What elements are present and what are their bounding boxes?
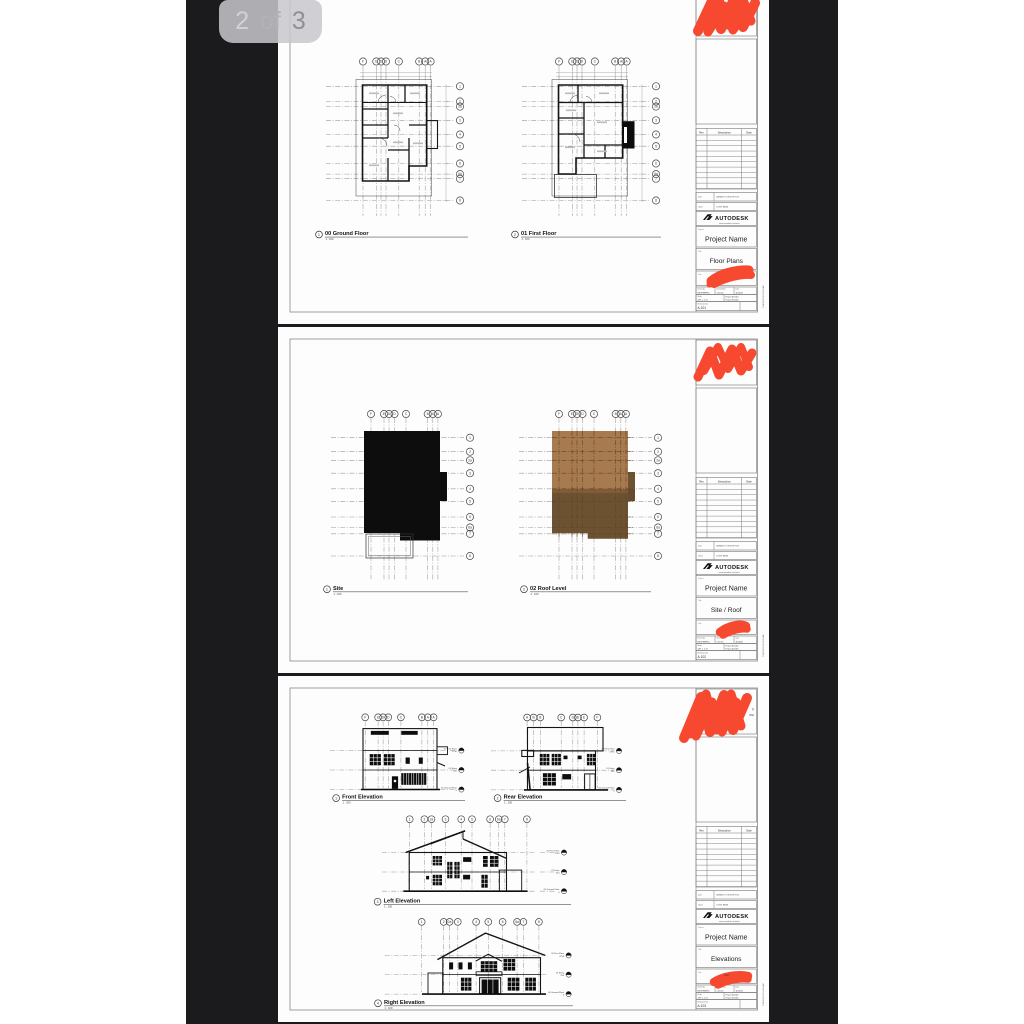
svg-text:3: 3 xyxy=(657,471,659,475)
svg-text:2750: 2750 xyxy=(559,956,565,958)
svg-text:1 : 100: 1 : 100 xyxy=(531,592,539,596)
svg-text:Client: Client xyxy=(698,205,703,208)
svg-text:Date: Date xyxy=(698,545,702,548)
svg-text:2a: 2a xyxy=(448,920,452,924)
svg-text:B: B xyxy=(427,412,429,416)
svg-text:7/14/2023 10:51:55 AM: 7/14/2023 10:51:55 AM xyxy=(762,983,765,1006)
svg-text:A-101: A-101 xyxy=(698,306,707,310)
svg-text:www.autodesk.com/revit: www.autodesk.com/revit xyxy=(719,222,740,225)
svg-text:NKOKHMPSC: NKOKHMPSC xyxy=(698,641,711,643)
svg-text:F: F xyxy=(362,60,364,64)
svg-text:2: 2 xyxy=(469,450,471,454)
svg-text:CLIENT NAME: CLIENT NAME xyxy=(716,554,729,557)
svg-text:2: 2 xyxy=(523,588,525,592)
svg-text:11/14/20: 11/14/20 xyxy=(736,990,743,992)
svg-text:6: 6 xyxy=(489,817,491,821)
svg-text:00 Ground Floor: 00 Ground Floor xyxy=(544,888,560,891)
svg-text:00 Ground Floor: 00 Ground Floor xyxy=(548,991,564,994)
svg-text:11/14/20: 11/14/20 xyxy=(736,292,743,294)
svg-text:Site: Site xyxy=(333,586,343,592)
svg-text:Site / Roof: Site / Roof xyxy=(711,607,742,614)
svg-text:Scale: Scale xyxy=(698,645,702,647)
svg-text:F: F xyxy=(558,412,560,416)
svg-text:Client: Client xyxy=(698,903,703,906)
svg-text:Project Number: Project Number xyxy=(726,299,740,302)
svg-text:1: 1 xyxy=(318,233,320,237)
svg-text:AUTODESK: AUTODESK xyxy=(715,565,749,571)
svg-text:Project Number: Project Number xyxy=(726,648,740,651)
svg-text:B: B xyxy=(615,412,617,416)
svg-text:3: 3 xyxy=(445,817,447,821)
svg-text:3: 3 xyxy=(377,900,379,904)
svg-text:Unit: Unit xyxy=(698,273,702,276)
svg-text:1: 1 xyxy=(657,436,659,440)
svg-text:NKOKHMPSC: NKOKHMPSC xyxy=(698,292,711,294)
svg-text:CAPABILITY DESCRIPTION: CAPABILITY DESCRIPTION xyxy=(716,196,740,199)
svg-text:AUTODESK: AUTODESK xyxy=(715,914,749,920)
svg-text:8: 8 xyxy=(655,199,657,203)
svg-text:Description: Description xyxy=(718,828,732,832)
svg-text:Project Name: Project Name xyxy=(705,237,748,244)
svg-text:Title: Title xyxy=(698,599,701,602)
svg-text:F: F xyxy=(596,716,598,720)
svg-text:7: 7 xyxy=(504,817,506,821)
svg-text:2750: 2750 xyxy=(610,752,616,754)
svg-text:Project: Project xyxy=(698,926,704,929)
svg-text:01 Entry: 01 Entry xyxy=(606,767,615,770)
svg-text:Revision Date: Revision Date xyxy=(698,651,709,654)
svg-text:2750: 2750 xyxy=(555,853,561,855)
svg-text:1 : 100: 1 : 100 xyxy=(384,904,392,908)
svg-text:TI: TI xyxy=(752,708,755,712)
svg-text:2: 2 xyxy=(514,233,516,237)
svg-text:1: 1 xyxy=(409,817,411,821)
svg-text:7/14/2023 10:51:55 AM: 7/14/2023 10:51:55 AM xyxy=(762,634,765,657)
svg-text:Client: Client xyxy=(698,554,703,557)
svg-text:4: 4 xyxy=(377,1002,379,1006)
svg-text:A-102: A-102 xyxy=(698,655,707,659)
svg-text:www.autodesk.com/revit: www.autodesk.com/revit xyxy=(719,920,740,923)
svg-text:5: 5 xyxy=(487,920,489,924)
svg-text:2: 2 xyxy=(657,450,659,454)
svg-text:6: 6 xyxy=(459,162,461,166)
svg-text:Project Name: Project Name xyxy=(705,586,748,593)
svg-text:B: B xyxy=(421,715,423,719)
svg-text:2: 2 xyxy=(424,817,426,821)
svg-text:6a: 6a xyxy=(468,526,472,530)
svg-text:Date: Date xyxy=(746,828,752,832)
svg-text:Unit: Unit xyxy=(698,622,702,625)
svg-text:Date: Date xyxy=(698,894,702,897)
svg-text:Checker: Checker xyxy=(717,640,724,643)
svg-text:CAPABILITY DESCRIPTION: CAPABILITY DESCRIPTION xyxy=(716,894,740,897)
svg-text:6a: 6a xyxy=(497,817,501,821)
svg-text:Project Number: Project Number xyxy=(726,994,740,997)
svg-text:8: 8 xyxy=(657,554,659,558)
svg-text:2a: 2a xyxy=(430,817,434,821)
svg-text:Rev: Rev xyxy=(699,130,704,134)
svg-text:Project Number: Project Number xyxy=(726,296,740,299)
svg-text:Date: Date xyxy=(736,986,740,989)
svg-text:Title: Title xyxy=(698,250,701,253)
svg-text:5: 5 xyxy=(655,144,657,148)
svg-text:Title: Title xyxy=(698,948,701,951)
svg-text:7/14/2023 10:51:55 AM: 7/14/2023 10:51:55 AM xyxy=(762,285,765,308)
svg-text:F: F xyxy=(364,715,366,719)
svg-text:8: 8 xyxy=(538,920,540,924)
svg-text:7: 7 xyxy=(523,920,525,924)
svg-text:4: 4 xyxy=(657,487,659,491)
svg-text:Front Elevation: Front Elevation xyxy=(342,795,383,801)
svg-text:4: 4 xyxy=(475,920,477,924)
svg-text:1: 1 xyxy=(326,588,328,592)
svg-text:3: 3 xyxy=(655,118,657,122)
svg-text:Left Elevation: Left Elevation xyxy=(384,898,421,904)
svg-text:2a: 2a xyxy=(458,105,462,109)
svg-text:B: B xyxy=(418,60,420,64)
svg-text:1: 1 xyxy=(655,84,657,88)
svg-text:Drawn by: Drawn by xyxy=(698,637,705,640)
svg-text:02 First Floor: 02 First Floor xyxy=(547,849,560,852)
svg-text:01 First Floor: 01 First Floor xyxy=(521,231,557,237)
svg-text:F: F xyxy=(558,60,560,64)
svg-text:F: F xyxy=(370,412,372,416)
svg-text:CAPABILITY DESCRIPTION: CAPABILITY DESCRIPTION xyxy=(716,545,740,548)
svg-text:E: E xyxy=(377,715,379,719)
svg-text:7: 7 xyxy=(655,177,657,181)
svg-text:Checker: Checker xyxy=(717,989,724,992)
svg-text:4: 4 xyxy=(460,817,462,821)
svg-text:E: E xyxy=(375,60,377,64)
svg-text:6a: 6a xyxy=(656,526,660,530)
svg-text:01 Entry: 01 Entry xyxy=(556,971,565,974)
svg-text:1 : 100: 1 : 100 xyxy=(385,1006,393,1010)
svg-text:2a: 2a xyxy=(468,458,472,462)
svg-text:Checked by: Checked by xyxy=(717,289,726,291)
svg-text:E: E xyxy=(583,716,585,720)
svg-text:E: E xyxy=(383,412,385,416)
svg-text:2: 2 xyxy=(443,920,445,924)
svg-text:1: 1 xyxy=(421,920,423,924)
svg-text:Project Number: Project Number xyxy=(726,645,740,648)
svg-text:8: 8 xyxy=(526,817,528,821)
svg-text:1 : 100: 1 : 100 xyxy=(504,801,512,805)
svg-text:Unit: Unit xyxy=(698,971,702,974)
svg-text:5: 5 xyxy=(469,499,471,503)
svg-text:Date: Date xyxy=(746,130,752,134)
svg-text:1: 1 xyxy=(469,436,471,440)
svg-text:Date: Date xyxy=(736,637,740,640)
svg-text:NKOKHMPSC: NKOKHMPSC xyxy=(698,990,711,992)
svg-text:A-103: A-103 xyxy=(698,1004,707,1008)
svg-text:7: 7 xyxy=(459,177,461,181)
svg-text:7: 7 xyxy=(469,532,471,536)
svg-text:2a: 2a xyxy=(654,105,658,109)
svg-text:Rear Elevation: Rear Elevation xyxy=(504,795,543,801)
svg-text:Description: Description xyxy=(718,479,732,483)
svg-text:Date: Date xyxy=(746,479,752,483)
svg-text:5: 5 xyxy=(471,817,473,821)
svg-text:Revision Date: Revision Date xyxy=(698,302,709,305)
svg-text:Drawn by: Drawn by xyxy=(698,986,705,989)
svg-text:5: 5 xyxy=(657,499,659,503)
svg-text:11/14/20: 11/14/20 xyxy=(736,641,743,643)
svg-text:6: 6 xyxy=(655,162,657,166)
svg-text:4: 4 xyxy=(469,487,471,491)
svg-text:Rev: Rev xyxy=(699,479,704,483)
svg-text:3: 3 xyxy=(469,471,471,475)
svg-text:AUTODESK: AUTODESK xyxy=(715,216,749,222)
svg-text:3: 3 xyxy=(457,920,459,924)
svg-text:3: 3 xyxy=(459,118,461,122)
svg-text:4: 4 xyxy=(655,133,657,137)
svg-text:00 Ground Floor: 00 Ground Floor xyxy=(325,231,369,237)
svg-text:7: 7 xyxy=(657,532,659,536)
svg-text:02 First Floor: 02 First Floor xyxy=(551,952,564,955)
svg-text:CLIENT NAME: CLIENT NAME xyxy=(716,205,729,208)
svg-text:02 First Floor: 02 First Floor xyxy=(444,747,457,750)
svg-text:E: E xyxy=(571,412,573,416)
svg-text:B: B xyxy=(539,716,541,720)
svg-text:2750: 2750 xyxy=(452,751,458,753)
svg-text:1 : 100: 1 : 100 xyxy=(326,237,334,241)
svg-text:00 Ground Floor: 00 Ground Floor xyxy=(441,786,457,789)
svg-text:4: 4 xyxy=(459,133,461,137)
svg-text:6: 6 xyxy=(469,515,471,519)
svg-text:Revision Date: Revision Date xyxy=(698,1000,709,1003)
svg-text:01 Entry: 01 Entry xyxy=(551,869,560,872)
svg-text:Description: Description xyxy=(718,130,732,134)
svg-text:1 : 100: 1 : 100 xyxy=(334,592,342,596)
svg-text:1 : 100: 1 : 100 xyxy=(522,237,530,241)
svg-text:02 Roof Level: 02 Roof Level xyxy=(530,586,567,592)
svg-text:Project Number: Project Number xyxy=(726,997,740,1000)
svg-text:1: 1 xyxy=(459,84,461,88)
svg-text:2a: 2a xyxy=(656,458,660,462)
svg-text:Right Elevation: Right Elevation xyxy=(384,1000,425,1006)
svg-text:1: 1 xyxy=(335,796,337,800)
svg-text:Scale: Scale xyxy=(698,296,702,298)
svg-text:Checker: Checker xyxy=(717,291,724,294)
svg-text:CLIENT NAME: CLIENT NAME xyxy=(716,903,729,906)
svg-text:E: E xyxy=(571,60,573,64)
svg-text:Floor Plans: Floor Plans xyxy=(710,258,744,265)
svg-text:Elevations: Elevations xyxy=(711,956,742,963)
svg-text:B: B xyxy=(533,716,535,720)
svg-text:02 First Floor: 02 First Floor xyxy=(602,748,615,751)
svg-text:Rev: Rev xyxy=(699,828,704,832)
svg-text:8: 8 xyxy=(459,199,461,203)
svg-text:6a: 6a xyxy=(515,920,519,924)
svg-text:6: 6 xyxy=(502,920,504,924)
svg-text:6: 6 xyxy=(657,515,659,519)
svg-text:8: 8 xyxy=(469,554,471,558)
svg-text:Project Name: Project Name xyxy=(705,935,748,942)
svg-text:Date: Date xyxy=(736,288,740,291)
svg-text:01 Entry: 01 Entry xyxy=(449,767,458,770)
svg-text:Scale: Scale xyxy=(698,994,702,996)
svg-text:5: 5 xyxy=(459,144,461,148)
svg-text:Date: Date xyxy=(698,196,702,199)
svg-text:Project: Project xyxy=(698,228,704,231)
svg-text:OGI: OGI xyxy=(749,713,754,717)
svg-text:www.autodesk.com/revit: www.autodesk.com/revit xyxy=(719,571,740,574)
svg-text:Project: Project xyxy=(698,577,704,580)
svg-text:Unit: Unit xyxy=(724,973,729,977)
svg-text:2: 2 xyxy=(497,796,499,800)
svg-text:Drawn by: Drawn by xyxy=(698,288,705,291)
svg-text:B: B xyxy=(614,60,616,64)
svg-text:1 : 100: 1 : 100 xyxy=(343,801,351,805)
